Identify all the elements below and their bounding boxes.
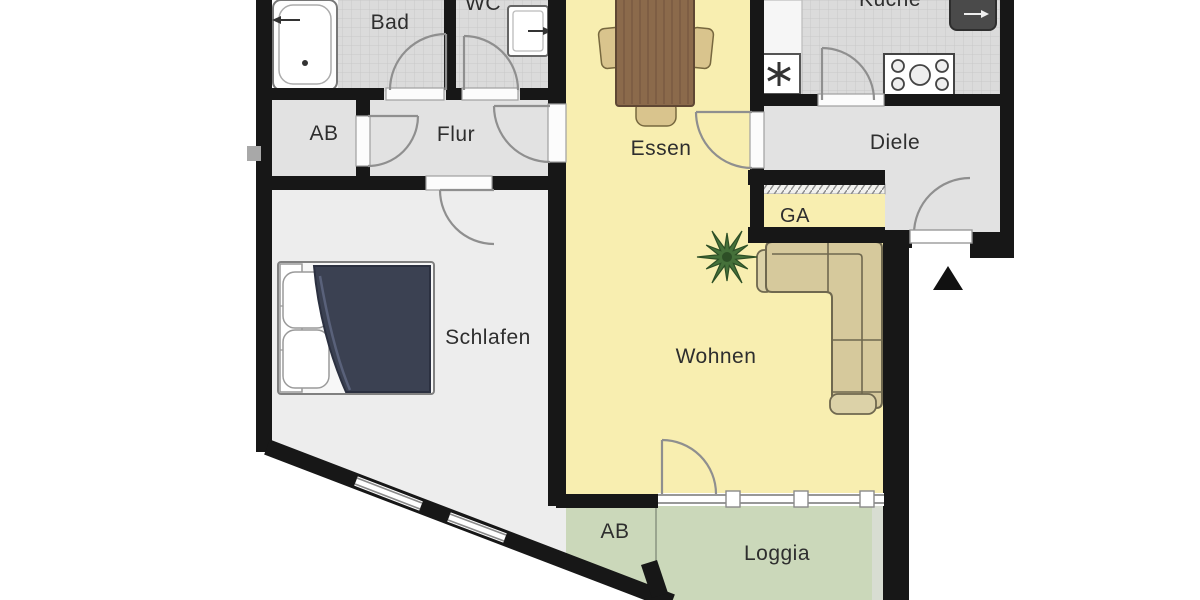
label-flur: Flur [437, 123, 475, 146]
pillow [283, 330, 329, 388]
label-wc: WC [465, 0, 501, 15]
kitchen-sink [950, 0, 996, 30]
sofa-armrest-bottom [830, 394, 876, 414]
floorplan-canvas: Bad WC AB Flur Essen Küche Diele GA Schl… [0, 0, 1200, 600]
label-wohnen: Wohnen [676, 345, 757, 368]
dishwasher [758, 54, 800, 94]
label-kueche: Küche [859, 0, 921, 11]
loggia-edge-strip [872, 504, 883, 600]
wall-vent-mark [247, 146, 261, 161]
stove [884, 54, 954, 96]
double-bed [278, 262, 434, 394]
room-floors [0, 0, 1200, 600]
label-ab-upper: AB [309, 122, 338, 145]
bathtub [272, 0, 337, 90]
label-diele: Diele [870, 131, 920, 154]
label-ab-lower: AB [600, 520, 629, 543]
window-post [860, 491, 874, 507]
label-bad: Bad [371, 11, 410, 34]
loggia-window-band [658, 491, 884, 507]
floorplan-drawing: Bad WC AB Flur Essen Küche Diele GA Schl… [0, 0, 1200, 600]
wardrobe-hatch [754, 184, 885, 194]
wc-sink [508, 6, 552, 56]
room-ga-floor [754, 194, 885, 227]
window-post [794, 491, 808, 507]
label-schlafen: Schlafen [445, 326, 531, 349]
label-essen: Essen [631, 137, 692, 160]
label-ga: GA [780, 205, 810, 227]
window-post [726, 491, 740, 507]
label-loggia: Loggia [744, 542, 810, 565]
